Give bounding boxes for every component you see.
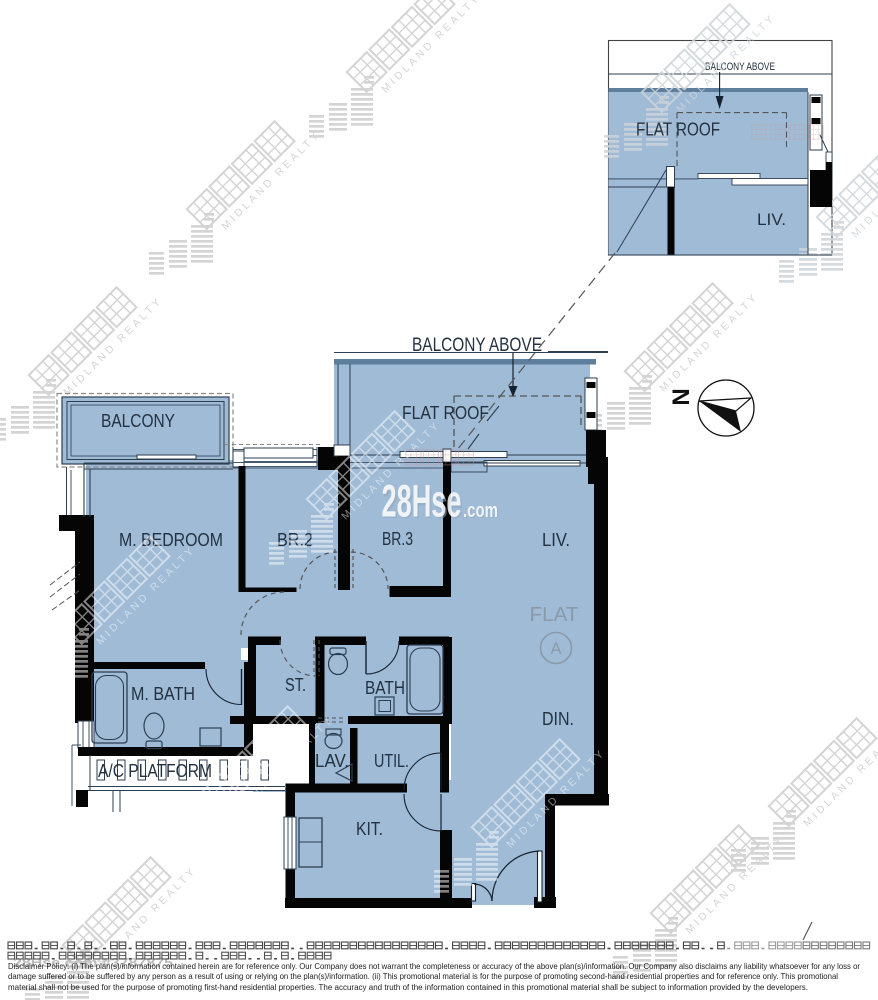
svg-text:Disclaimer Policy: (i) The pla: Disclaimer Policy: (i) The plan(s)/infor…	[8, 961, 860, 971]
svg-text:damage suffered or to be suffe: damage suffered or to be suffered by any…	[8, 971, 838, 981]
svg-text:M. BEDROOM: M. BEDROOM	[119, 530, 223, 550]
svg-text:FLAT ROOF: FLAT ROOF	[402, 402, 489, 423]
svg-text:DIN.: DIN.	[542, 709, 574, 729]
svg-text:LAV.: LAV.	[315, 751, 349, 771]
svg-text:28Hse: 28Hse	[382, 476, 462, 527]
svg-text:KIT.: KIT.	[356, 819, 383, 839]
svg-text:LIV.: LIV.	[542, 530, 570, 550]
svg-text:N: N	[668, 388, 695, 405]
svg-text:.com: .com	[463, 500, 498, 522]
svg-text:ST.: ST.	[285, 675, 306, 695]
svg-text:FLAT ROOF: FLAT ROOF	[636, 120, 720, 140]
svg-text:BATH: BATH	[365, 678, 405, 698]
svg-text:UTIL.: UTIL.	[374, 751, 409, 771]
svg-text:A: A	[550, 640, 561, 658]
svg-text:BALCONY ABOVE: BALCONY ABOVE	[412, 335, 542, 356]
svg-text:A/C PLATFORM: A/C PLATFORM	[98, 761, 212, 781]
svg-text:LIV.: LIV.	[757, 210, 786, 229]
svg-text:FLAT: FLAT	[530, 604, 579, 626]
svg-text:BALCONY: BALCONY	[101, 411, 175, 431]
svg-text:material shall not be used for: material shall not be used for the purpo…	[8, 982, 808, 992]
svg-text:M. BATH: M. BATH	[131, 684, 195, 704]
svg-text:BR.3: BR.3	[382, 529, 413, 549]
